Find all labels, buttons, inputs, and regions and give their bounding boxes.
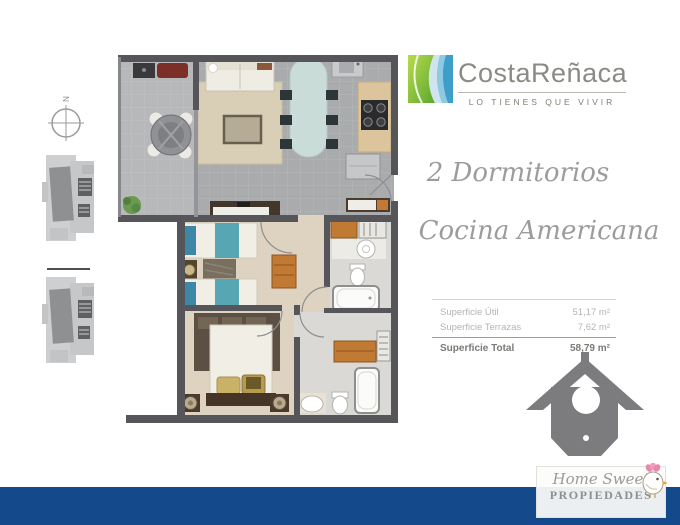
feature-kitchen: Cocina Americana	[404, 216, 674, 246]
surface-row-util: Superficie Útil 51,17 m²	[432, 305, 616, 320]
surface-table: Superficie Útil 51,17 m² Superficie Terr…	[432, 299, 616, 356]
bath2-sink	[301, 396, 323, 412]
bath1-toilet	[350, 264, 365, 286]
bath1-closet	[331, 221, 386, 238]
compass-icon: N	[46, 93, 86, 145]
tv-sideboard	[210, 201, 280, 216]
terrace-slider	[194, 110, 198, 217]
brand-logo-mark	[408, 55, 453, 103]
master-bed	[206, 325, 276, 406]
surface-row-terrazas: Superficie Terrazas 7,62 m²	[432, 320, 616, 335]
bath2-toilet	[332, 392, 348, 414]
stove	[361, 100, 388, 130]
master-nightstand-right	[270, 394, 289, 412]
bath1-sink	[357, 240, 375, 258]
surface-label: Superficie Útil	[432, 305, 499, 320]
terrace-plant	[123, 196, 141, 214]
bath1-tub	[333, 286, 379, 311]
floor-plan	[118, 55, 398, 425]
entry-desk	[346, 198, 390, 212]
coffee-table	[224, 116, 261, 143]
terrace-rail	[118, 57, 121, 217]
surface-label: Superficie Terrazas	[432, 320, 521, 335]
bird-icon	[639, 463, 669, 499]
surface-value: 51,17 m²	[573, 305, 617, 320]
dining-table	[290, 58, 327, 157]
feature-bedrooms: 2 Dormitorios	[398, 158, 638, 188]
brand-rule	[458, 92, 626, 93]
birdhouse-icon	[524, 352, 646, 462]
surface-total-label: Superficie Total	[432, 342, 514, 356]
footer-logo: Home Sweet PROPIEDADES	[536, 466, 666, 518]
surface-value: 7,62 m²	[578, 320, 616, 335]
terrace-grill	[133, 63, 155, 78]
compass-north-label: N	[61, 96, 70, 102]
sofa	[206, 62, 274, 91]
fridge	[346, 154, 380, 179]
terrace-table-set	[147, 112, 193, 159]
site-plan-thumbnail-top	[38, 152, 106, 246]
bedroom2-closet	[272, 255, 296, 288]
twin-rug	[203, 259, 236, 280]
brand-logo: CostaReñaca LO TIENES QUE VIVIR	[458, 58, 658, 107]
brand-name: CostaReñaca	[458, 58, 658, 89]
site-plan-thumbnail-bottom	[38, 274, 106, 368]
twin-bed-1	[181, 223, 257, 258]
site-plan-connector	[47, 268, 90, 270]
terrace-bench	[157, 63, 188, 78]
brand-tagline: LO TIENES QUE VIVIR	[458, 97, 626, 107]
bath2-tub	[355, 368, 379, 413]
